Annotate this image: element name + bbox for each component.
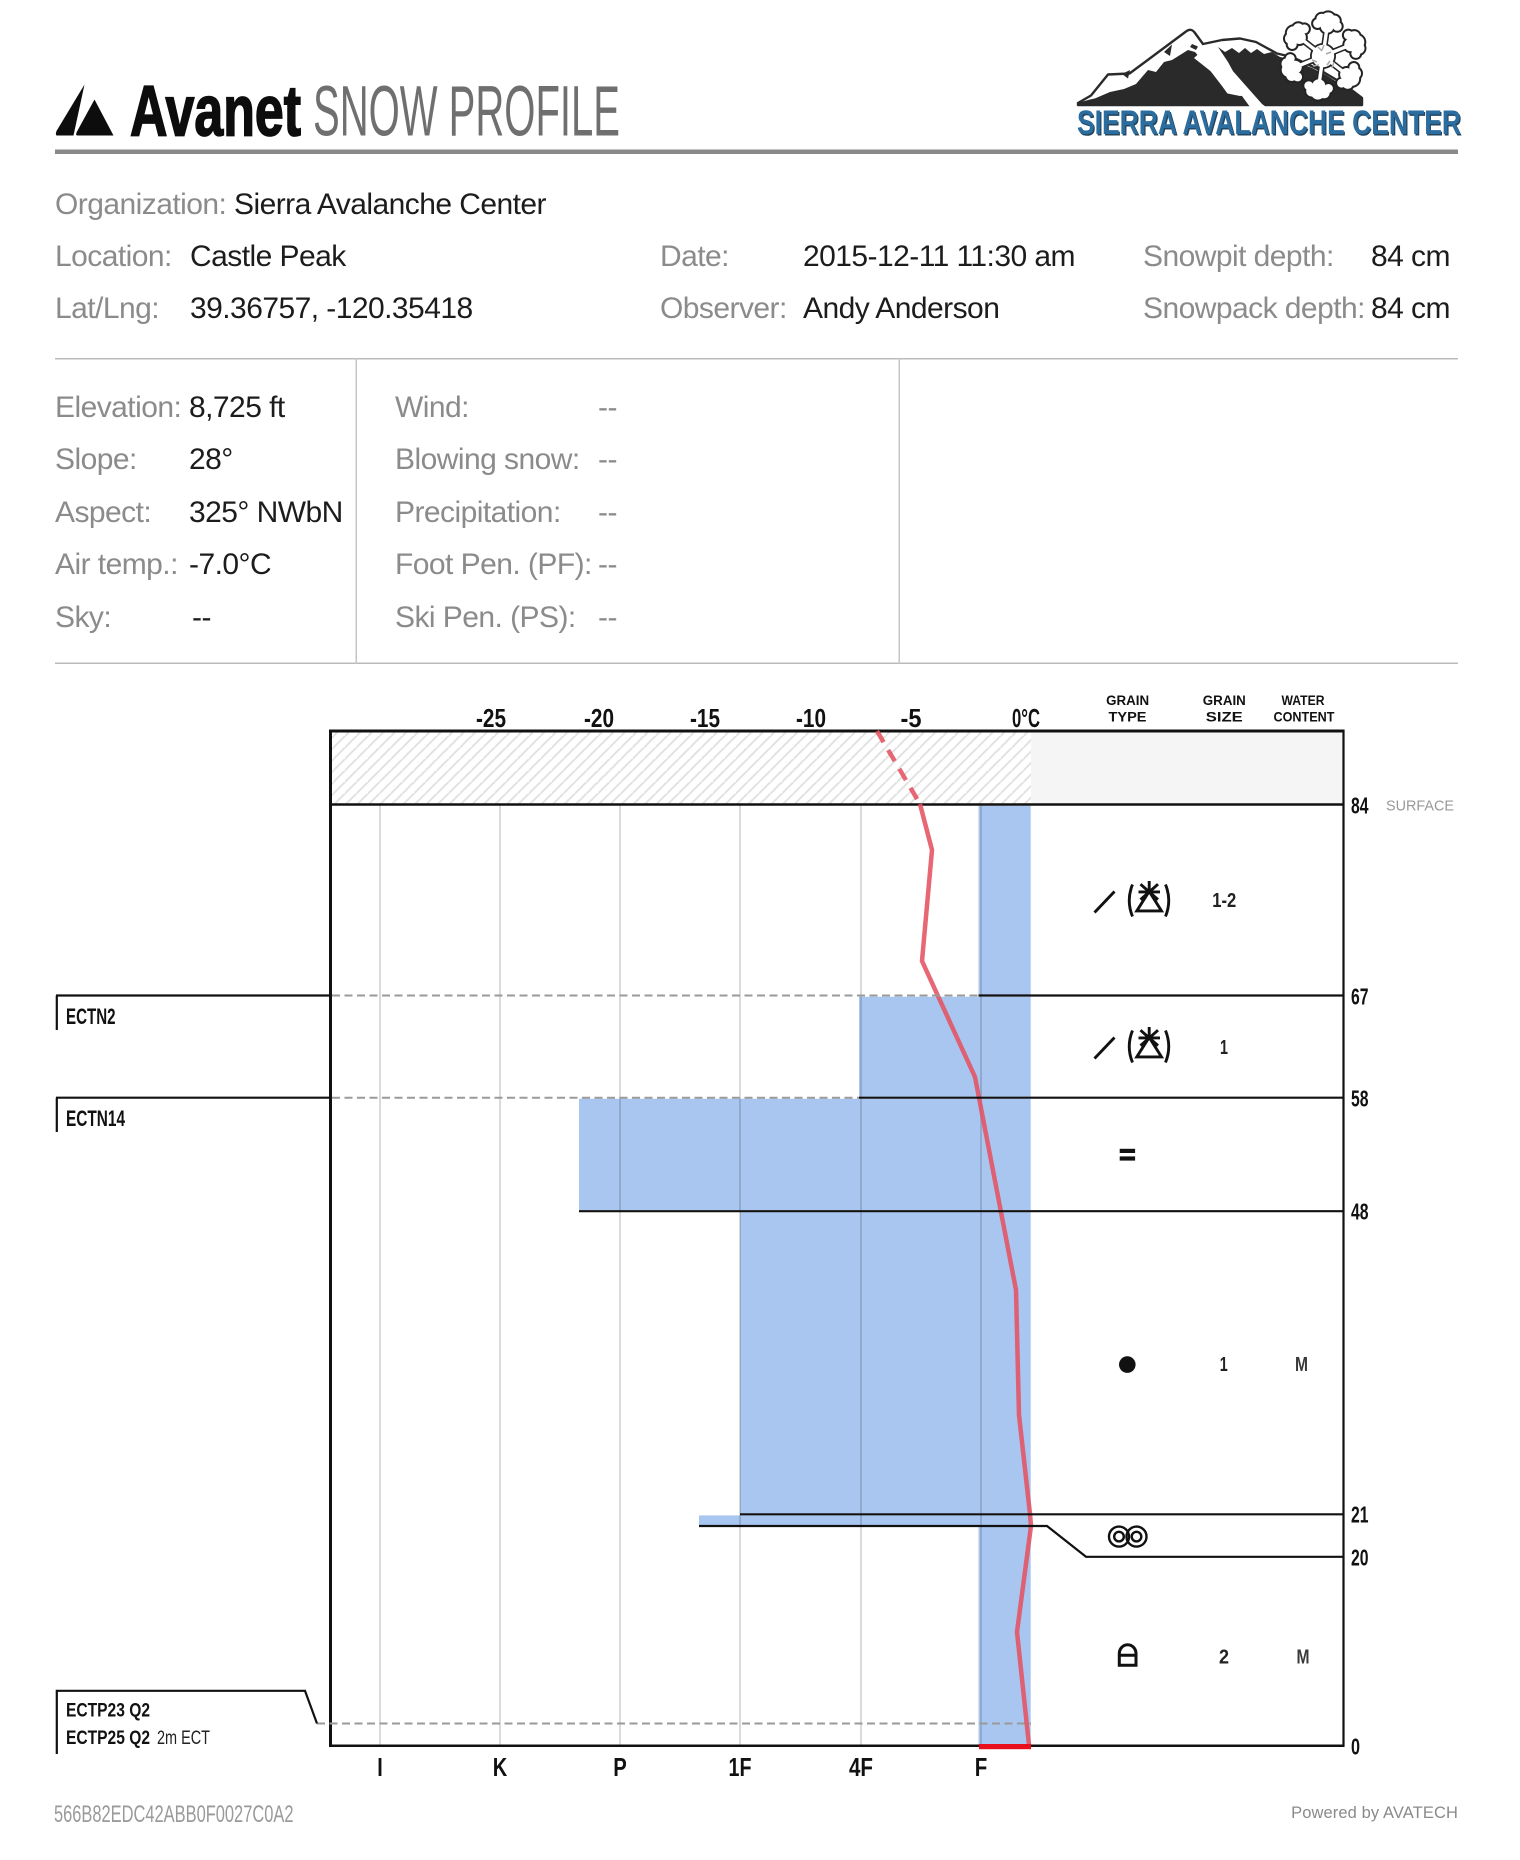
svg-text:ECTP25 Q2: ECTP25 Q2 bbox=[66, 1728, 150, 1749]
svg-text:0°C: 0°C bbox=[1012, 703, 1040, 733]
svg-text:2: 2 bbox=[1219, 1647, 1229, 1669]
svg-text:1F: 1F bbox=[729, 1752, 752, 1782]
svg-text:CONTENT: CONTENT bbox=[1274, 710, 1336, 725]
svg-text:M: M bbox=[1297, 1647, 1310, 1669]
svg-text:48: 48 bbox=[1351, 1199, 1369, 1225]
svg-text:67: 67 bbox=[1351, 984, 1369, 1010]
svg-text:M: M bbox=[1295, 1354, 1308, 1376]
svg-text:58: 58 bbox=[1351, 1086, 1369, 1112]
svg-text:20: 20 bbox=[1351, 1545, 1369, 1571]
svg-text:GRAIN: GRAIN bbox=[1106, 693, 1149, 708]
svg-text:-5: -5 bbox=[901, 703, 922, 733]
svg-text:ECTN2: ECTN2 bbox=[66, 1004, 116, 1029]
svg-text:-20: -20 bbox=[584, 703, 614, 733]
svg-text:P: P bbox=[613, 1752, 627, 1782]
svg-text:F: F bbox=[975, 1752, 988, 1782]
svg-text:SURFACE: SURFACE bbox=[1386, 799, 1454, 815]
svg-text:I: I bbox=[377, 1752, 383, 1782]
svg-text:GRAIN: GRAIN bbox=[1203, 693, 1246, 708]
svg-text:21: 21 bbox=[1351, 1502, 1369, 1528]
svg-text:2m ECT: 2m ECT bbox=[157, 1728, 210, 1749]
svg-text:WATER: WATER bbox=[1282, 693, 1325, 708]
svg-text:1: 1 bbox=[1220, 1037, 1228, 1059]
svg-text:SIZE: SIZE bbox=[1206, 710, 1243, 725]
svg-text:84: 84 bbox=[1351, 793, 1369, 819]
svg-text:-10: -10 bbox=[796, 703, 826, 733]
svg-text:4F: 4F bbox=[849, 1752, 873, 1782]
svg-text:ECTN14: ECTN14 bbox=[66, 1106, 126, 1131]
svg-text:1: 1 bbox=[1220, 1354, 1228, 1376]
svg-text:1-2: 1-2 bbox=[1212, 890, 1236, 912]
svg-text:Avanet: Avanet bbox=[130, 73, 301, 152]
svg-text:SIERRA AVALANCHE CENTER: SIERRA AVALANCHE CENTER bbox=[1077, 104, 1461, 142]
svg-text:-15: -15 bbox=[690, 703, 720, 733]
svg-text:SNOW PROFILE: SNOW PROFILE bbox=[313, 73, 620, 152]
svg-text:K: K bbox=[493, 1752, 508, 1782]
svg-text:0: 0 bbox=[1351, 1734, 1360, 1760]
svg-text:-25: -25 bbox=[476, 703, 506, 733]
svg-text:TYPE: TYPE bbox=[1109, 710, 1147, 725]
svg-text:ECTP23 Q2: ECTP23 Q2 bbox=[66, 1701, 150, 1722]
